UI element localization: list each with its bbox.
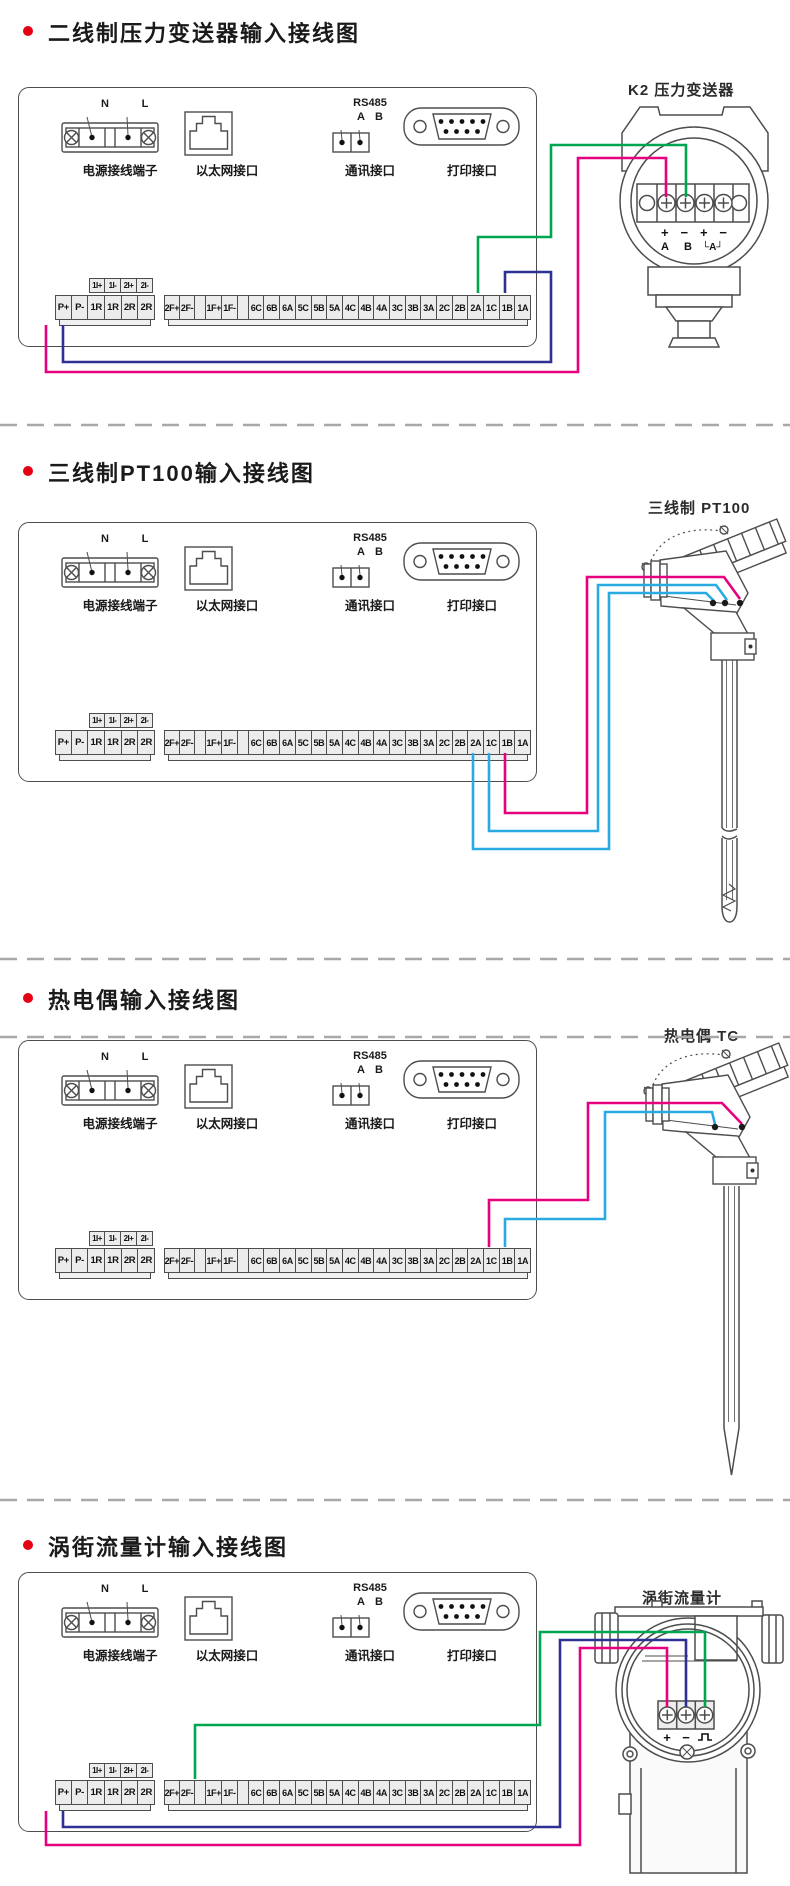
- terminal-cell: 1I-: [105, 278, 121, 293]
- terminal-cell: 1I+: [89, 1763, 105, 1778]
- terminal-cell: 2C: [437, 730, 453, 755]
- terminal-cell: 2I+: [121, 713, 137, 728]
- terminal-cell: 2R: [122, 295, 139, 320]
- rs485-a-label: A: [351, 546, 371, 558]
- terminal-cell: 2F+: [164, 295, 180, 320]
- terminal-cell: 4B: [359, 1780, 375, 1805]
- terminal-cell: 1I+: [89, 713, 105, 728]
- terminal-cell: 4B: [359, 730, 375, 755]
- recorder-rear-panel: N L RS485 A B 电源接线端子 以太网接口 通讯接口 打印接口 1I+…: [18, 1040, 537, 1300]
- terminal-cell: 4C: [343, 1780, 359, 1805]
- terminal-cell: 2B: [453, 1248, 469, 1273]
- tc-terminal-dot: [712, 1124, 718, 1130]
- power-n-label: N: [95, 98, 115, 110]
- terminal-cell: 2I+: [121, 1231, 137, 1246]
- transmitter-bracket-row: └A┘: [702, 240, 723, 253]
- terminal-cell: 6A: [280, 1248, 296, 1273]
- terminal-cell: 1F+: [206, 1248, 222, 1273]
- terminal-cell: 6B: [264, 295, 280, 320]
- terminal-cell: P-: [72, 295, 89, 320]
- terminal-cell: 1F-: [222, 730, 238, 755]
- terminal-cell: 2R: [138, 1248, 155, 1273]
- transmitter-polarity-row: + − + −: [661, 225, 727, 240]
- terminal-cell: 2F+: [164, 1780, 180, 1805]
- terminal-cell: P-: [72, 1248, 89, 1273]
- terminal-cell: 1F+: [206, 295, 222, 320]
- terminal-cell: 5A: [327, 730, 343, 755]
- rs485-b-label: B: [369, 546, 389, 558]
- power-terminal-label: 电源接线端子: [74, 595, 166, 614]
- pt100-terminal-dot: [722, 600, 728, 606]
- terminal-cell: 1C: [484, 1780, 500, 1805]
- terminal-cell: 1A: [515, 1248, 531, 1273]
- terminal-cell: 4B: [359, 1248, 375, 1273]
- rs485-label: RS485: [345, 97, 395, 109]
- terminal-cell: 2F-: [180, 1248, 196, 1273]
- terminal-cell: 1I-: [105, 713, 121, 728]
- rs485-b-label: B: [369, 1064, 389, 1076]
- terminal-cell: P+: [55, 730, 72, 755]
- terminal-strip-header: 1I+1I-2I+2I-: [89, 1231, 153, 1246]
- terminal-cell: 4A: [374, 1780, 390, 1805]
- terminal-strip-left-base: [59, 754, 151, 761]
- terminal-strip-left: P+P-1R1R2R2R: [55, 295, 155, 320]
- terminal-cell: 1B: [500, 1780, 516, 1805]
- terminal-cell: 5A: [327, 295, 343, 320]
- terminal-cell: 5A: [327, 1248, 343, 1273]
- terminal-cell: 5C: [296, 295, 312, 320]
- terminal-cell: 4C: [343, 295, 359, 320]
- terminal-cell: 3B: [406, 730, 422, 755]
- flowmeter-minus-label: −: [682, 1730, 690, 1745]
- power-n-label: N: [95, 1051, 115, 1063]
- terminal-cell: 4B: [359, 295, 375, 320]
- power-n-label: N: [95, 1583, 115, 1595]
- power-l-label: L: [135, 533, 155, 545]
- terminal-cell: 1A: [515, 1780, 531, 1805]
- rs485-label: RS485: [345, 532, 395, 544]
- terminal-cell: [195, 730, 206, 755]
- comm-port-label: 通讯接口: [325, 1113, 415, 1132]
- terminal-cell: 2R: [138, 295, 155, 320]
- terminal-cell: 1I+: [89, 278, 105, 293]
- terminal-strip-left: P+P-1R1R2R2R: [55, 730, 155, 755]
- terminal-cell: 3B: [406, 1780, 422, 1805]
- terminal-cell: 3C: [390, 295, 406, 320]
- wiring-diagram-page: 二线制压力变送器输入接线图 三线制PT100输入接线图 热电偶输入接线图 涡街流…: [0, 0, 790, 1886]
- terminal-cell: 6C: [249, 730, 265, 755]
- terminal-cell: 3A: [421, 1780, 437, 1805]
- rs485-label: RS485: [345, 1050, 395, 1062]
- terminal-strip-left-base: [59, 1272, 151, 1279]
- terminal-cell: 2A: [468, 1780, 484, 1805]
- terminal-cell: 5B: [312, 730, 328, 755]
- power-l-label: L: [135, 98, 155, 110]
- terminal-cell: 2R: [138, 1780, 155, 1805]
- pressure-transmitter-drawing: + − + − A B └A┘: [620, 107, 768, 347]
- pt100-terminal-dot: [710, 600, 716, 606]
- terminal-cell: 6B: [264, 730, 280, 755]
- terminal-strip-left-base: [59, 1804, 151, 1811]
- terminal-cell: [238, 730, 249, 755]
- terminal-cell: 2A: [468, 730, 484, 755]
- terminal-cell: 1A: [515, 295, 531, 320]
- recorder-rear-panel: N L RS485 A B 电源接线端子 以太网接口 通讯接口 打印接口 1I+…: [18, 1572, 537, 1832]
- thermocouple-drawing: [644, 1043, 790, 1475]
- terminal-strip-right: 2F+2F-1F+1F-6C6B6A5C5B5A4C4B4A3C3B3A2C2B…: [164, 295, 531, 320]
- terminal-cell: 3C: [390, 730, 406, 755]
- terminal-cell: 1R: [105, 730, 122, 755]
- terminal-cell: 2R: [138, 730, 155, 755]
- section4-title: 涡街流量计输入接线图: [48, 1530, 288, 1562]
- terminal-cell: 4A: [374, 1248, 390, 1273]
- terminal-cell: 4C: [343, 730, 359, 755]
- rs485-b-label: B: [369, 1596, 389, 1608]
- terminal-cell: 1B: [500, 1248, 516, 1273]
- terminal-cell: 1R: [88, 1780, 105, 1805]
- comm-port-label: 通讯接口: [325, 1645, 415, 1664]
- terminal-cell: 2A: [468, 295, 484, 320]
- terminal-strip-left: P+P-1R1R2R2R: [55, 1248, 155, 1273]
- terminal-strip-left-base: [59, 319, 151, 326]
- vortex-flowmeter-drawing: + −: [595, 1601, 783, 1873]
- terminal-cell: P-: [72, 730, 89, 755]
- section2-title: 三线制PT100输入接线图: [48, 456, 315, 488]
- terminal-cell: 6A: [280, 730, 296, 755]
- pt100-terminal-dot: [737, 600, 743, 606]
- recorder-rear-panel: N L RS485 A B 电源接线端子 以太网接口 通讯接口 打印接口 1I+…: [18, 87, 537, 347]
- rs485-b-label: B: [369, 111, 389, 123]
- terminal-cell: 1R: [105, 295, 122, 320]
- terminal-cell: 2F-: [180, 295, 196, 320]
- terminal-cell: 5A: [327, 1780, 343, 1805]
- pt100-label: 三线制 PT100: [648, 497, 750, 518]
- terminal-cell: 2I+: [121, 278, 137, 293]
- terminal-cell: 1F+: [206, 1780, 222, 1805]
- terminal-cell: 2B: [453, 1780, 469, 1805]
- terminal-cell: 1R: [105, 1248, 122, 1273]
- pulse-icon: [698, 1734, 712, 1740]
- ethernet-port-label: 以太网接口: [182, 1645, 272, 1664]
- terminal-cell: 5C: [296, 1780, 312, 1805]
- power-l-label: L: [135, 1583, 155, 1595]
- terminal-cell: 5B: [312, 1248, 328, 1273]
- terminal-strip-right: 2F+2F-1F+1F-6C6B6A5C5B5A4C4B4A3C3B3A2C2B…: [164, 730, 531, 755]
- terminal-cell: P-: [72, 1780, 89, 1805]
- terminal-cell: 3C: [390, 1780, 406, 1805]
- terminal-strip-right-base: [168, 1804, 528, 1811]
- terminal-cell: 3C: [390, 1248, 406, 1273]
- terminal-cell: [238, 1248, 249, 1273]
- power-terminal-label: 电源接线端子: [74, 1113, 166, 1132]
- terminal-cell: [195, 295, 206, 320]
- terminal-strip-header: 1I+1I-2I+2I-: [89, 1763, 153, 1778]
- terminal-strip-right: 2F+2F-1F+1F-6C6B6A5C5B5A4C4B4A3C3B3A2C2B…: [164, 1248, 531, 1273]
- terminal-cell: 2F+: [164, 1248, 180, 1273]
- print-port-label: 打印接口: [427, 1645, 517, 1664]
- comm-port-label: 通讯接口: [325, 160, 415, 179]
- rs485-a-label: A: [351, 1596, 371, 1608]
- thermocouple-label: 热电偶 TC: [664, 1025, 739, 1046]
- terminal-cell: 3B: [406, 1248, 422, 1273]
- terminal-cell: 2F-: [180, 730, 196, 755]
- terminal-cell: 1R: [88, 1248, 105, 1273]
- terminal-cell: 5C: [296, 1248, 312, 1273]
- terminal-cell: 1B: [500, 730, 516, 755]
- terminal-cell: [238, 295, 249, 320]
- terminal-cell: 6A: [280, 1780, 296, 1805]
- section1-bullet-icon: [23, 26, 33, 36]
- terminal-cell: 2I-: [137, 278, 153, 293]
- terminal-cell: 2C: [437, 1780, 453, 1805]
- terminal-cell: 2I-: [137, 1763, 153, 1778]
- terminal-cell: 2I-: [137, 713, 153, 728]
- terminal-cell: 4A: [374, 730, 390, 755]
- terminal-cell: 1F-: [222, 1248, 238, 1273]
- terminal-cell: 4A: [374, 295, 390, 320]
- section4-bullet-icon: [23, 1540, 33, 1550]
- terminal-cell: P+: [55, 295, 72, 320]
- terminal-cell: 2F-: [180, 1780, 196, 1805]
- terminal-cell: 6A: [280, 295, 296, 320]
- pt100-drawing: [642, 519, 790, 922]
- ethernet-port-label: 以太网接口: [182, 160, 272, 179]
- terminal-cell: 6C: [249, 1780, 265, 1805]
- terminal-cell: [195, 1248, 206, 1273]
- terminal-cell: 2I+: [121, 1763, 137, 1778]
- terminal-cell: 1I-: [105, 1231, 121, 1246]
- terminal-cell: 2F+: [164, 730, 180, 755]
- terminal-cell: 3A: [421, 730, 437, 755]
- rs485-label: RS485: [345, 1582, 395, 1594]
- terminal-cell: 5B: [312, 295, 328, 320]
- power-n-label: N: [95, 533, 115, 545]
- section2-bullet-icon: [23, 466, 33, 476]
- wire-1a-to-pt100: [505, 577, 740, 813]
- terminal-cell: 1C: [484, 730, 500, 755]
- rs485-a-label: A: [351, 1064, 371, 1076]
- power-terminal-label: 电源接线端子: [74, 160, 166, 179]
- tc-terminal-dot: [739, 1124, 745, 1130]
- terminal-cell: 1R: [88, 295, 105, 320]
- terminal-cell: 2A: [468, 1248, 484, 1273]
- terminal-cell: 6B: [264, 1780, 280, 1805]
- terminal-cell: 1C: [484, 1248, 500, 1273]
- ethernet-port-label: 以太网接口: [182, 595, 272, 614]
- terminal-cell: 1I+: [89, 1231, 105, 1246]
- terminal-cell: 1F-: [222, 1780, 238, 1805]
- section1-title: 二线制压力变送器输入接线图: [48, 16, 360, 48]
- terminal-strip-right-base: [168, 754, 528, 761]
- recorder-rear-panel: N L RS485 A B 电源接线端子 以太网接口 通讯接口 打印接口 1I+…: [18, 522, 537, 782]
- print-port-label: 打印接口: [427, 595, 517, 614]
- terminal-strip-header: 1I+1I-2I+2I-: [89, 278, 153, 293]
- terminal-cell: 2B: [453, 730, 469, 755]
- terminal-cell: 6C: [249, 1248, 265, 1273]
- section3-title: 热电偶输入接线图: [48, 983, 240, 1015]
- terminal-cell: P+: [55, 1248, 72, 1273]
- terminal-cell: 1F-: [222, 295, 238, 320]
- power-l-label: L: [135, 1051, 155, 1063]
- terminal-cell: 3A: [421, 1248, 437, 1273]
- terminal-cell: 2R: [122, 1780, 139, 1805]
- rs485-a-label: A: [351, 111, 371, 123]
- flowmeter-plus-label: +: [663, 1730, 671, 1745]
- terminal-cell: [195, 1780, 206, 1805]
- terminal-cell: 2I-: [137, 1231, 153, 1246]
- vortex-flowmeter-label: 涡街流量计: [642, 1587, 722, 1608]
- terminal-cell: 2C: [437, 295, 453, 320]
- print-port-label: 打印接口: [427, 1113, 517, 1132]
- terminal-strip-header: 1I+1I-2I+2I-: [89, 713, 153, 728]
- terminal-cell: 4C: [343, 1248, 359, 1273]
- transmitter-ab-row: A B: [661, 241, 692, 253]
- print-port-label: 打印接口: [427, 160, 517, 179]
- terminal-cell: 1R: [105, 1780, 122, 1805]
- terminal-cell: 1R: [88, 730, 105, 755]
- terminal-cell: P+: [55, 1780, 72, 1805]
- terminal-cell: 6B: [264, 1248, 280, 1273]
- terminal-strip-left: P+P-1R1R2R2R: [55, 1780, 155, 1805]
- terminal-strip-right: 2F+2F-1F+1F-6C6B6A5C5B5A4C4B4A3C3B3A2C2B…: [164, 1780, 531, 1805]
- terminal-strip-right-base: [168, 319, 528, 326]
- comm-port-label: 通讯接口: [325, 595, 415, 614]
- terminal-cell: [238, 1780, 249, 1805]
- pressure-transmitter-label: K2 压力变送器: [628, 79, 734, 100]
- terminal-cell: 1F+: [206, 730, 222, 755]
- terminal-cell: 3B: [406, 295, 422, 320]
- terminal-cell: 2R: [122, 730, 139, 755]
- terminal-cell: 1B: [500, 295, 516, 320]
- section3-bullet-icon: [23, 993, 33, 1003]
- power-terminal-label: 电源接线端子: [74, 1645, 166, 1664]
- terminal-strip-right-base: [168, 1272, 528, 1279]
- terminal-cell: 1A: [515, 730, 531, 755]
- terminal-cell: 6C: [249, 295, 265, 320]
- terminal-cell: 5C: [296, 730, 312, 755]
- terminal-cell: 3A: [421, 295, 437, 320]
- terminal-cell: 5B: [312, 1780, 328, 1805]
- terminal-cell: 2R: [122, 1248, 139, 1273]
- terminal-cell: 2B: [453, 295, 469, 320]
- terminal-cell: 1I-: [105, 1763, 121, 1778]
- terminal-cell: 1C: [484, 295, 500, 320]
- ethernet-port-label: 以太网接口: [182, 1113, 272, 1132]
- terminal-cell: 2C: [437, 1248, 453, 1273]
